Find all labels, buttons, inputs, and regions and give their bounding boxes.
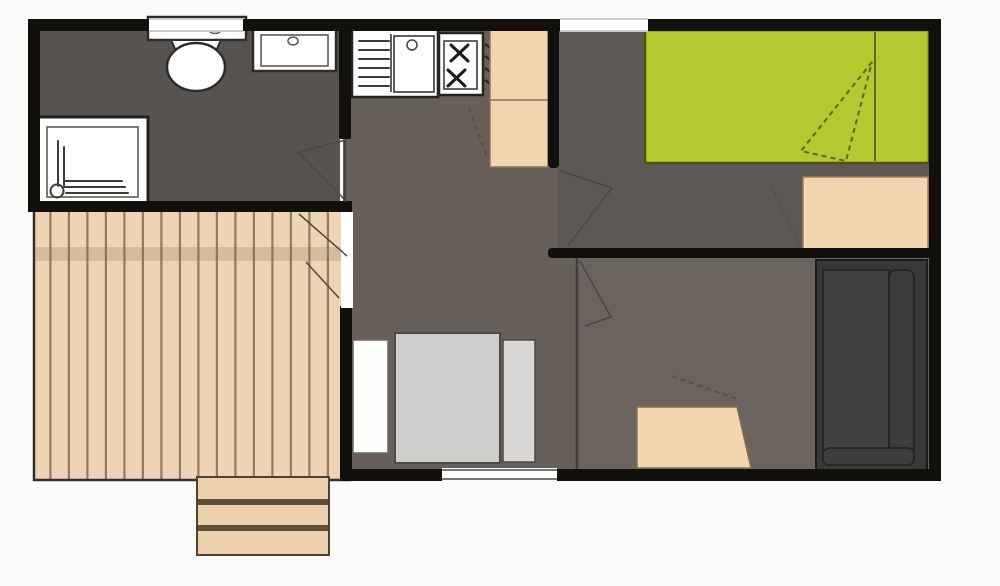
steps-block (197, 477, 329, 555)
window-bathroom-top (149, 18, 243, 32)
washbasin (253, 27, 336, 71)
deck-steps (197, 477, 329, 555)
wall-bathroom-divider (339, 19, 351, 139)
sofa-armrest (823, 448, 914, 465)
wall-lounge-divider (548, 248, 935, 258)
window-hall-top (560, 18, 648, 32)
bed-pillow (503, 340, 535, 462)
wardrobe (353, 340, 388, 453)
living-area (353, 333, 535, 463)
wall-left (28, 19, 40, 211)
toilet-bowl (167, 43, 225, 91)
washbasin-tap (288, 37, 298, 45)
wall-bottom (340, 469, 941, 481)
two-burner-hob (439, 33, 492, 95)
deck-terrace (34, 208, 350, 555)
kitchen-sink-unit (352, 29, 438, 97)
deck-shadow-band (35, 247, 349, 261)
step-divider-1 (198, 499, 328, 505)
wall-bathroom-bottom (28, 201, 352, 212)
sofa (816, 260, 927, 470)
kitchen-cabinet (490, 27, 548, 167)
bedside-unit (803, 177, 928, 249)
washbasin-counter (253, 27, 336, 71)
table (637, 407, 751, 468)
floor-plan-canvas (0, 0, 1000, 586)
deck-door-opening (341, 212, 353, 308)
floor-plan-svg (0, 0, 1000, 586)
shower (37, 117, 148, 207)
wall-bedroom-divider (548, 19, 559, 168)
double-bed (645, 30, 929, 163)
window-glass (560, 18, 648, 32)
step-divider-2 (198, 525, 328, 531)
window-glass (149, 18, 243, 32)
cabinet-body (490, 27, 548, 167)
window-living-bottom (442, 468, 557, 481)
wall-living-left (340, 306, 352, 481)
single-bed (395, 333, 500, 463)
sink-tap (407, 40, 417, 50)
sofa-backrest (889, 270, 914, 458)
sofa-seat (823, 270, 889, 450)
